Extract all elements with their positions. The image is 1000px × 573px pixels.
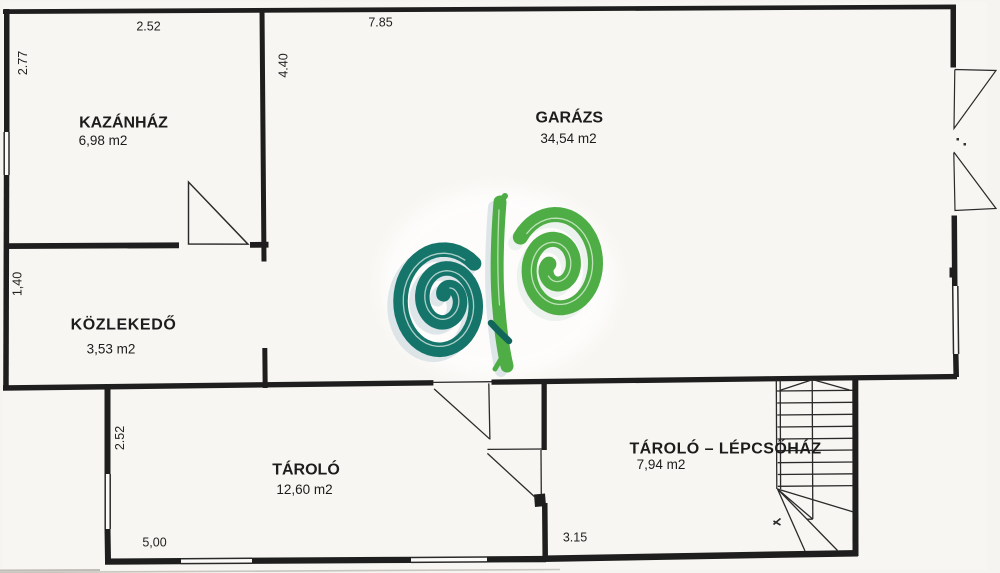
svg-text:7,94 m2: 7,94 m2	[637, 457, 686, 472]
svg-text:TÁROLÓ – LÉPCSŐHÁZ: TÁROLÓ – LÉPCSŐHÁZ	[629, 439, 821, 458]
svg-text:2.77: 2.77	[16, 51, 30, 75]
svg-text:KÖZLEKEDŐ: KÖZLEKEDŐ	[71, 315, 177, 334]
svg-text:5,00: 5,00	[142, 536, 166, 550]
svg-text:2.52: 2.52	[113, 426, 127, 450]
svg-text:7.85: 7.85	[368, 16, 392, 30]
svg-text:3,53 m2: 3,53 m2	[87, 342, 136, 357]
svg-text:6,98 m2: 6,98 m2	[79, 133, 128, 148]
svg-text:KAZÁNHÁZ: KAZÁNHÁZ	[79, 113, 168, 132]
svg-text:GARÁZS: GARÁZS	[536, 108, 604, 127]
svg-text:2.52: 2.52	[136, 20, 160, 34]
svg-text:34,54 m2: 34,54 m2	[540, 131, 596, 146]
svg-text:1,40: 1,40	[11, 272, 25, 296]
svg-text:12,60 m2: 12,60 m2	[276, 482, 332, 497]
svg-text:TÁROLÓ: TÁROLÓ	[272, 459, 340, 478]
svg-text:3.15: 3.15	[563, 531, 587, 545]
svg-text:4.40: 4.40	[277, 53, 291, 77]
